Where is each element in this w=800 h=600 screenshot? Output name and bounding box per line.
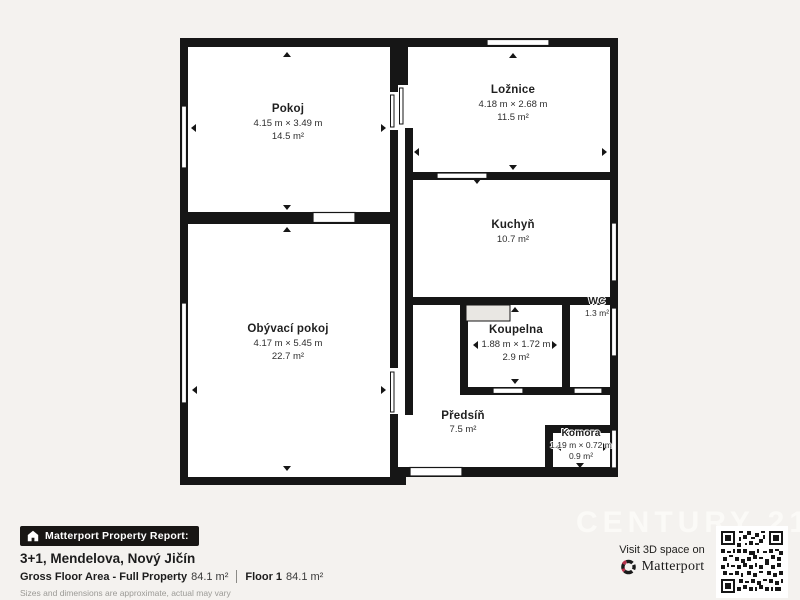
room-dimensions: 4.18 m × 2.68 m [479,99,548,110]
area-metrics: Gross Floor Area - Full Property 84.1 m²… [20,570,323,583]
bathroom-niche [466,305,510,321]
room-dimensions: 1.19 m × 0.72 m [550,440,612,450]
matterport-wordmark: Matterport [642,559,705,575]
floor-value: 84.1 m² [286,571,323,583]
room-dimensions: 4.15 m × 3.49 m [254,118,323,129]
room-name: Ložnice [479,84,548,96]
gross-floor-area-label: Gross Floor Area - Full Property [20,571,187,583]
room-label-predsin: Předsíň 7.5 m² [441,410,485,435]
room-label-loznice: Ložnice 4.18 m × 2.68 m 11.5 m² [479,84,548,123]
property-title: 3+1, Mendelova, Nový Jičín [20,551,195,566]
room-name: WC [585,296,609,307]
property-report-page: CENTURY 21 [0,0,800,600]
room-label-obyvaci-pokoj: Obývací pokoj 4.17 m × 5.45 m 22.7 m² [247,323,328,362]
qr-pattern [721,531,783,593]
room-label-wc: WC 1.3 m² [585,296,609,318]
room-area: 10.7 m² [491,234,534,245]
room-name: Obývací pokoj [247,323,328,335]
room-area: 11.5 m² [479,112,548,123]
badge-label: Matterport Property Report: [45,530,189,542]
gross-floor-area-value: 84.1 m² [191,571,228,583]
room-name: Koupelna [482,324,551,336]
room-area: 22.7 m² [247,351,328,362]
qr-code [716,526,788,598]
disclaimer-text: Sizes and dimensions are approximate, ac… [20,588,231,598]
room-name: Předsíň [441,410,485,422]
room-name: Komora [550,428,612,439]
room-name: Kuchyň [491,219,534,231]
room-area: 2.9 m² [482,352,551,363]
room-area: 7.5 m² [441,424,485,435]
room-dimensions: 4.17 m × 5.45 m [247,338,328,349]
visit-3d-text: Visit 3D space on [612,544,712,556]
room-label-koupelna: Koupelna 1.88 m × 1.72 m 2.9 m² [482,324,551,363]
floor-plan [0,0,800,600]
matterport-logo-row: Matterport [598,558,726,575]
room-name: Pokoj [254,103,323,115]
room-label-kuchyn: Kuchyň 10.7 m² [491,219,534,245]
room-area: 14.5 m² [254,131,323,142]
room-area: 0.9 m² [550,451,612,461]
matterport-report-badge: Matterport Property Report: [20,526,199,546]
matterport-logo-icon [620,558,637,575]
room-label-pokoj: Pokoj 4.15 m × 3.49 m 14.5 m² [254,103,323,142]
room-dimensions: 1.88 m × 1.72 m [482,339,551,350]
floor-label: Floor 1 [245,571,282,583]
house-icon [27,530,39,542]
metrics-divider [236,570,237,583]
room-label-komora: Komora 1.19 m × 0.72 m 0.9 m² [550,428,612,461]
room-area: 1.3 m² [585,308,609,318]
